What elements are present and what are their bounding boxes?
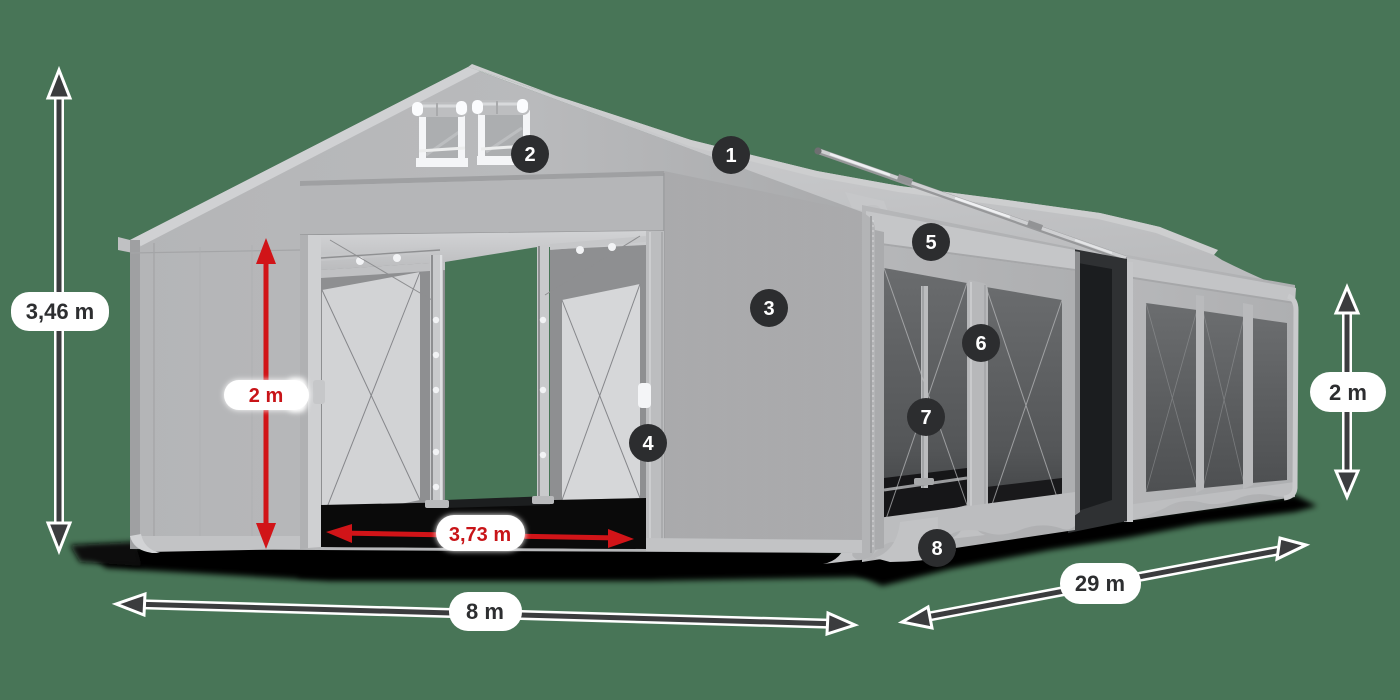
svg-text:3: 3: [763, 298, 774, 320]
svg-text:4: 4: [642, 433, 654, 455]
svg-text:8 m: 8 m: [466, 599, 504, 624]
svg-text:3,73 m: 3,73 m: [449, 524, 511, 546]
svg-text:29 m: 29 m: [1075, 571, 1125, 596]
svg-text:5: 5: [925, 232, 936, 254]
svg-text:2 m: 2 m: [1329, 380, 1367, 405]
svg-text:8: 8: [931, 538, 942, 560]
svg-text:2: 2: [524, 144, 535, 166]
svg-text:7: 7: [920, 407, 931, 429]
svg-text:3,46 m: 3,46 m: [26, 299, 95, 324]
svg-text:6: 6: [975, 333, 986, 355]
svg-text:2 m: 2 m: [249, 385, 283, 407]
svg-text:1: 1: [725, 145, 736, 167]
